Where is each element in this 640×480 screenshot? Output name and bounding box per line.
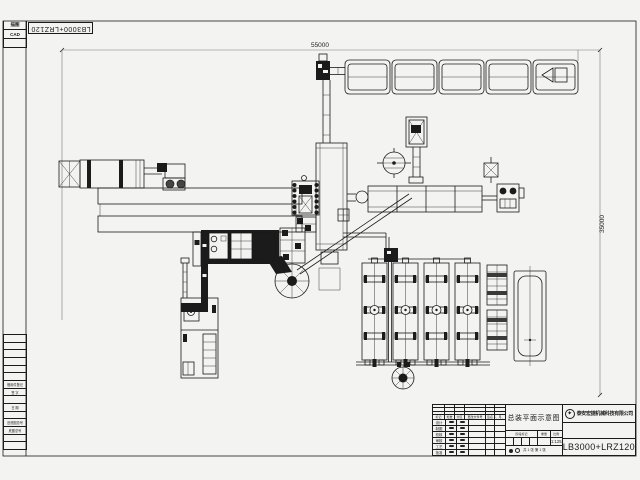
inclined-belt-conveyor xyxy=(316,54,578,94)
dimension-overall-height: 35000 xyxy=(598,50,606,397)
margin-table-row: 日 期 xyxy=(4,404,26,412)
revision-area: 标记 处数 分区 更改文件号 签名 年、月、日 设计 制图 校核 审核 工艺 批… xyxy=(433,405,506,455)
dust-collector xyxy=(377,148,411,178)
margin-table-row xyxy=(4,366,26,374)
bitumen-tanks xyxy=(362,248,480,365)
margin-table-row: 底图总号 xyxy=(4,427,26,435)
small-support-tower xyxy=(181,258,189,298)
margin-table-row: 签 字 xyxy=(4,389,26,397)
corner-stamp-row xyxy=(4,39,26,48)
sheet-note-row: 共 1 张 第 1 张 xyxy=(506,446,562,455)
signature-row: 批准 xyxy=(433,450,505,455)
drawing-number: LB3000+LRZ120 xyxy=(563,439,635,455)
rotated-drawing-code-box: LB3000+LRZ120 xyxy=(28,22,93,34)
tank-pump-station xyxy=(392,362,414,389)
cad-drawing-sheet: { "sheet": { "background": "#f3f3f1", "l… xyxy=(0,0,640,480)
filler-silo-elevator xyxy=(406,117,427,183)
rotated-drawing-code: LB3000+LRZ120 xyxy=(31,25,91,32)
margin-table-row: 旧底图总号 xyxy=(4,419,26,427)
corner-stamp: 描图 CAD xyxy=(3,21,27,48)
right-auxiliary-unit xyxy=(484,157,524,212)
finished-product-conveyor xyxy=(347,186,497,212)
title-stage-area: 总装平面示意图 阶段标记 重量 比例 1:125 共 1 张 第 1 张 xyxy=(506,405,563,455)
title-block: 标记 处数 分区 更改文件号 签名 年、月、日 设计 制图 校核 审核 工艺 批… xyxy=(432,404,636,456)
empty-cell xyxy=(563,423,635,439)
projection-symbol-icon xyxy=(509,448,520,453)
hot-elevator-head xyxy=(280,228,305,263)
fuel-tank xyxy=(514,266,546,366)
margin-table-row xyxy=(4,396,26,404)
margin-table-row xyxy=(4,343,26,351)
scale-value: 1:125 xyxy=(551,438,562,445)
margin-table-row xyxy=(4,373,26,381)
sheet-note: 共 1 张 第 1 张 xyxy=(523,448,546,453)
margin-table-row xyxy=(4,335,26,343)
mixing-tower xyxy=(316,143,349,290)
margin-table-row xyxy=(4,350,26,358)
burner-unit xyxy=(144,163,185,190)
stage-value-row: 1:125 xyxy=(506,438,562,446)
sheet-frame xyxy=(3,21,636,456)
company-number-area: ✦ 泰安宏捷机械科技有限公司 LB3000+LRZ120 xyxy=(563,405,635,455)
margin-table-row: 借用件登记 xyxy=(4,381,26,389)
exhaust-fan xyxy=(266,256,309,298)
cold-feed-truss-conveyors xyxy=(98,188,302,232)
corner-stamp-row: 描图 xyxy=(4,21,26,30)
drawing-title: 总装平面示意图 xyxy=(506,405,562,431)
corner-stamp-cad-label: CAD xyxy=(4,30,26,39)
retaining-wall xyxy=(181,230,208,312)
company-logo-icon: ✦ xyxy=(565,409,575,419)
margin-table-row xyxy=(4,442,26,450)
company-cell: ✦ 泰安宏捷机械科技有限公司 xyxy=(563,405,635,423)
margin-table-row xyxy=(4,358,26,366)
margin-table-row xyxy=(4,412,26,420)
tank-stairs xyxy=(487,265,507,350)
dimension-height-text: 35000 xyxy=(599,215,606,233)
company-name: 泰安宏捷机械科技有限公司 xyxy=(577,410,633,417)
margin-signature-table: 借用件登记 签 字 日 期 旧底图总号 底图总号 xyxy=(3,334,27,450)
hot-aggregate-elevator xyxy=(323,80,330,143)
dimension-width-text: 55000 xyxy=(311,42,329,49)
drying-drum xyxy=(59,160,144,188)
margin-table-row xyxy=(4,435,26,443)
stage-header-row: 阶段标记 重量 比例 xyxy=(506,431,562,438)
